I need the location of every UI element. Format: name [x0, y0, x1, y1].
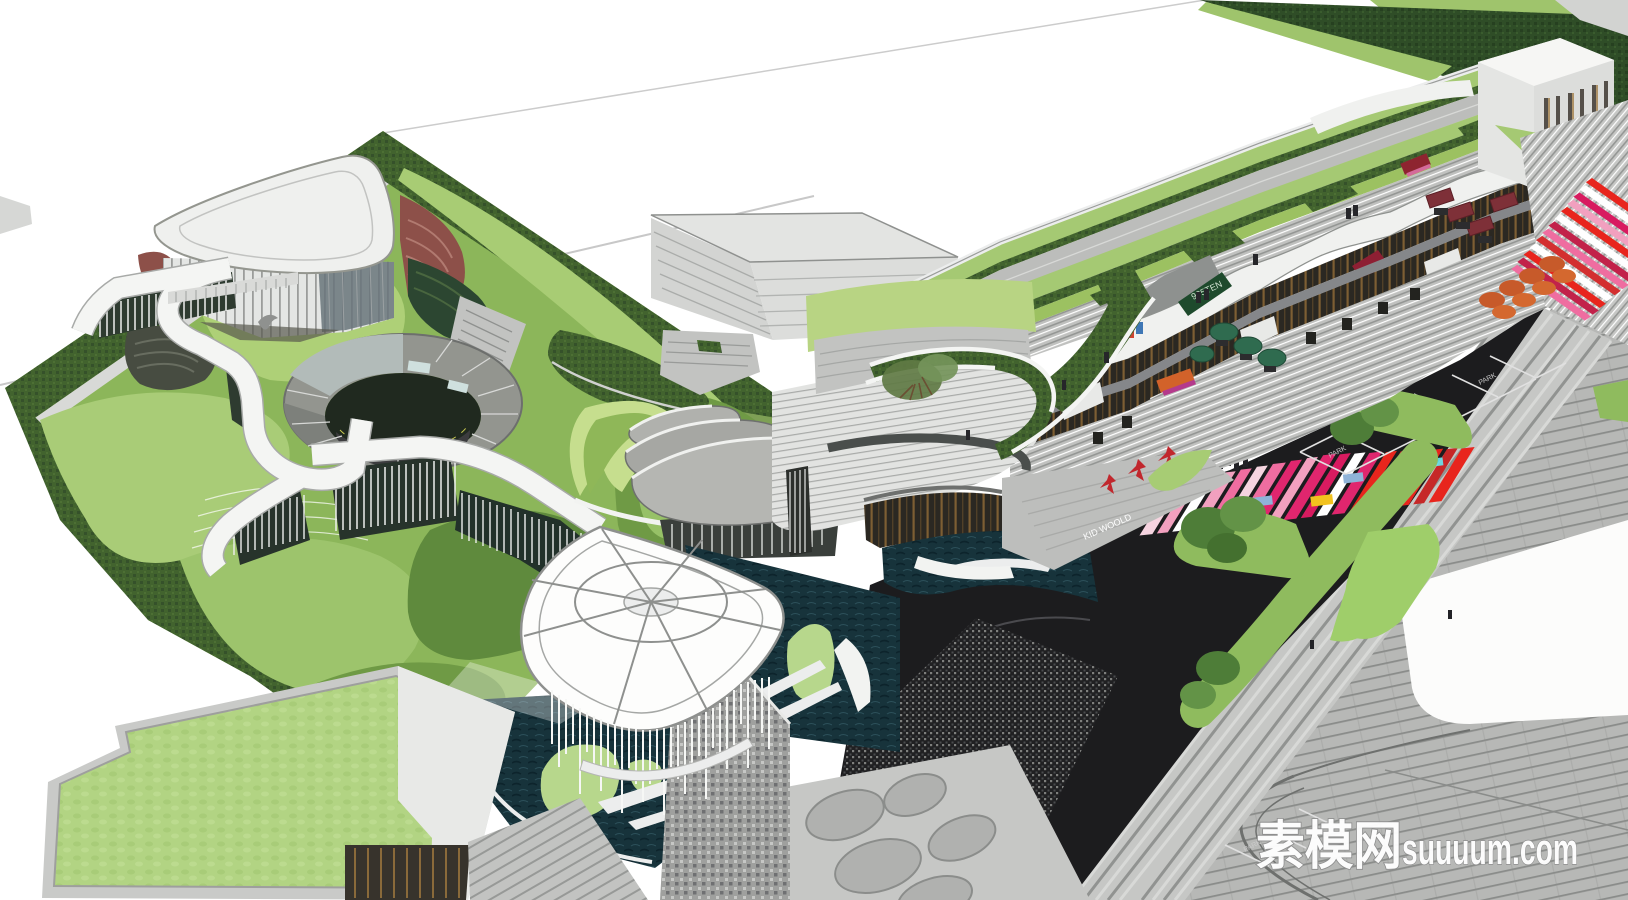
- svg-text:素模网: 素模网: [1256, 818, 1402, 876]
- svg-text:suuuum.com: suuuum.com: [1402, 825, 1578, 874]
